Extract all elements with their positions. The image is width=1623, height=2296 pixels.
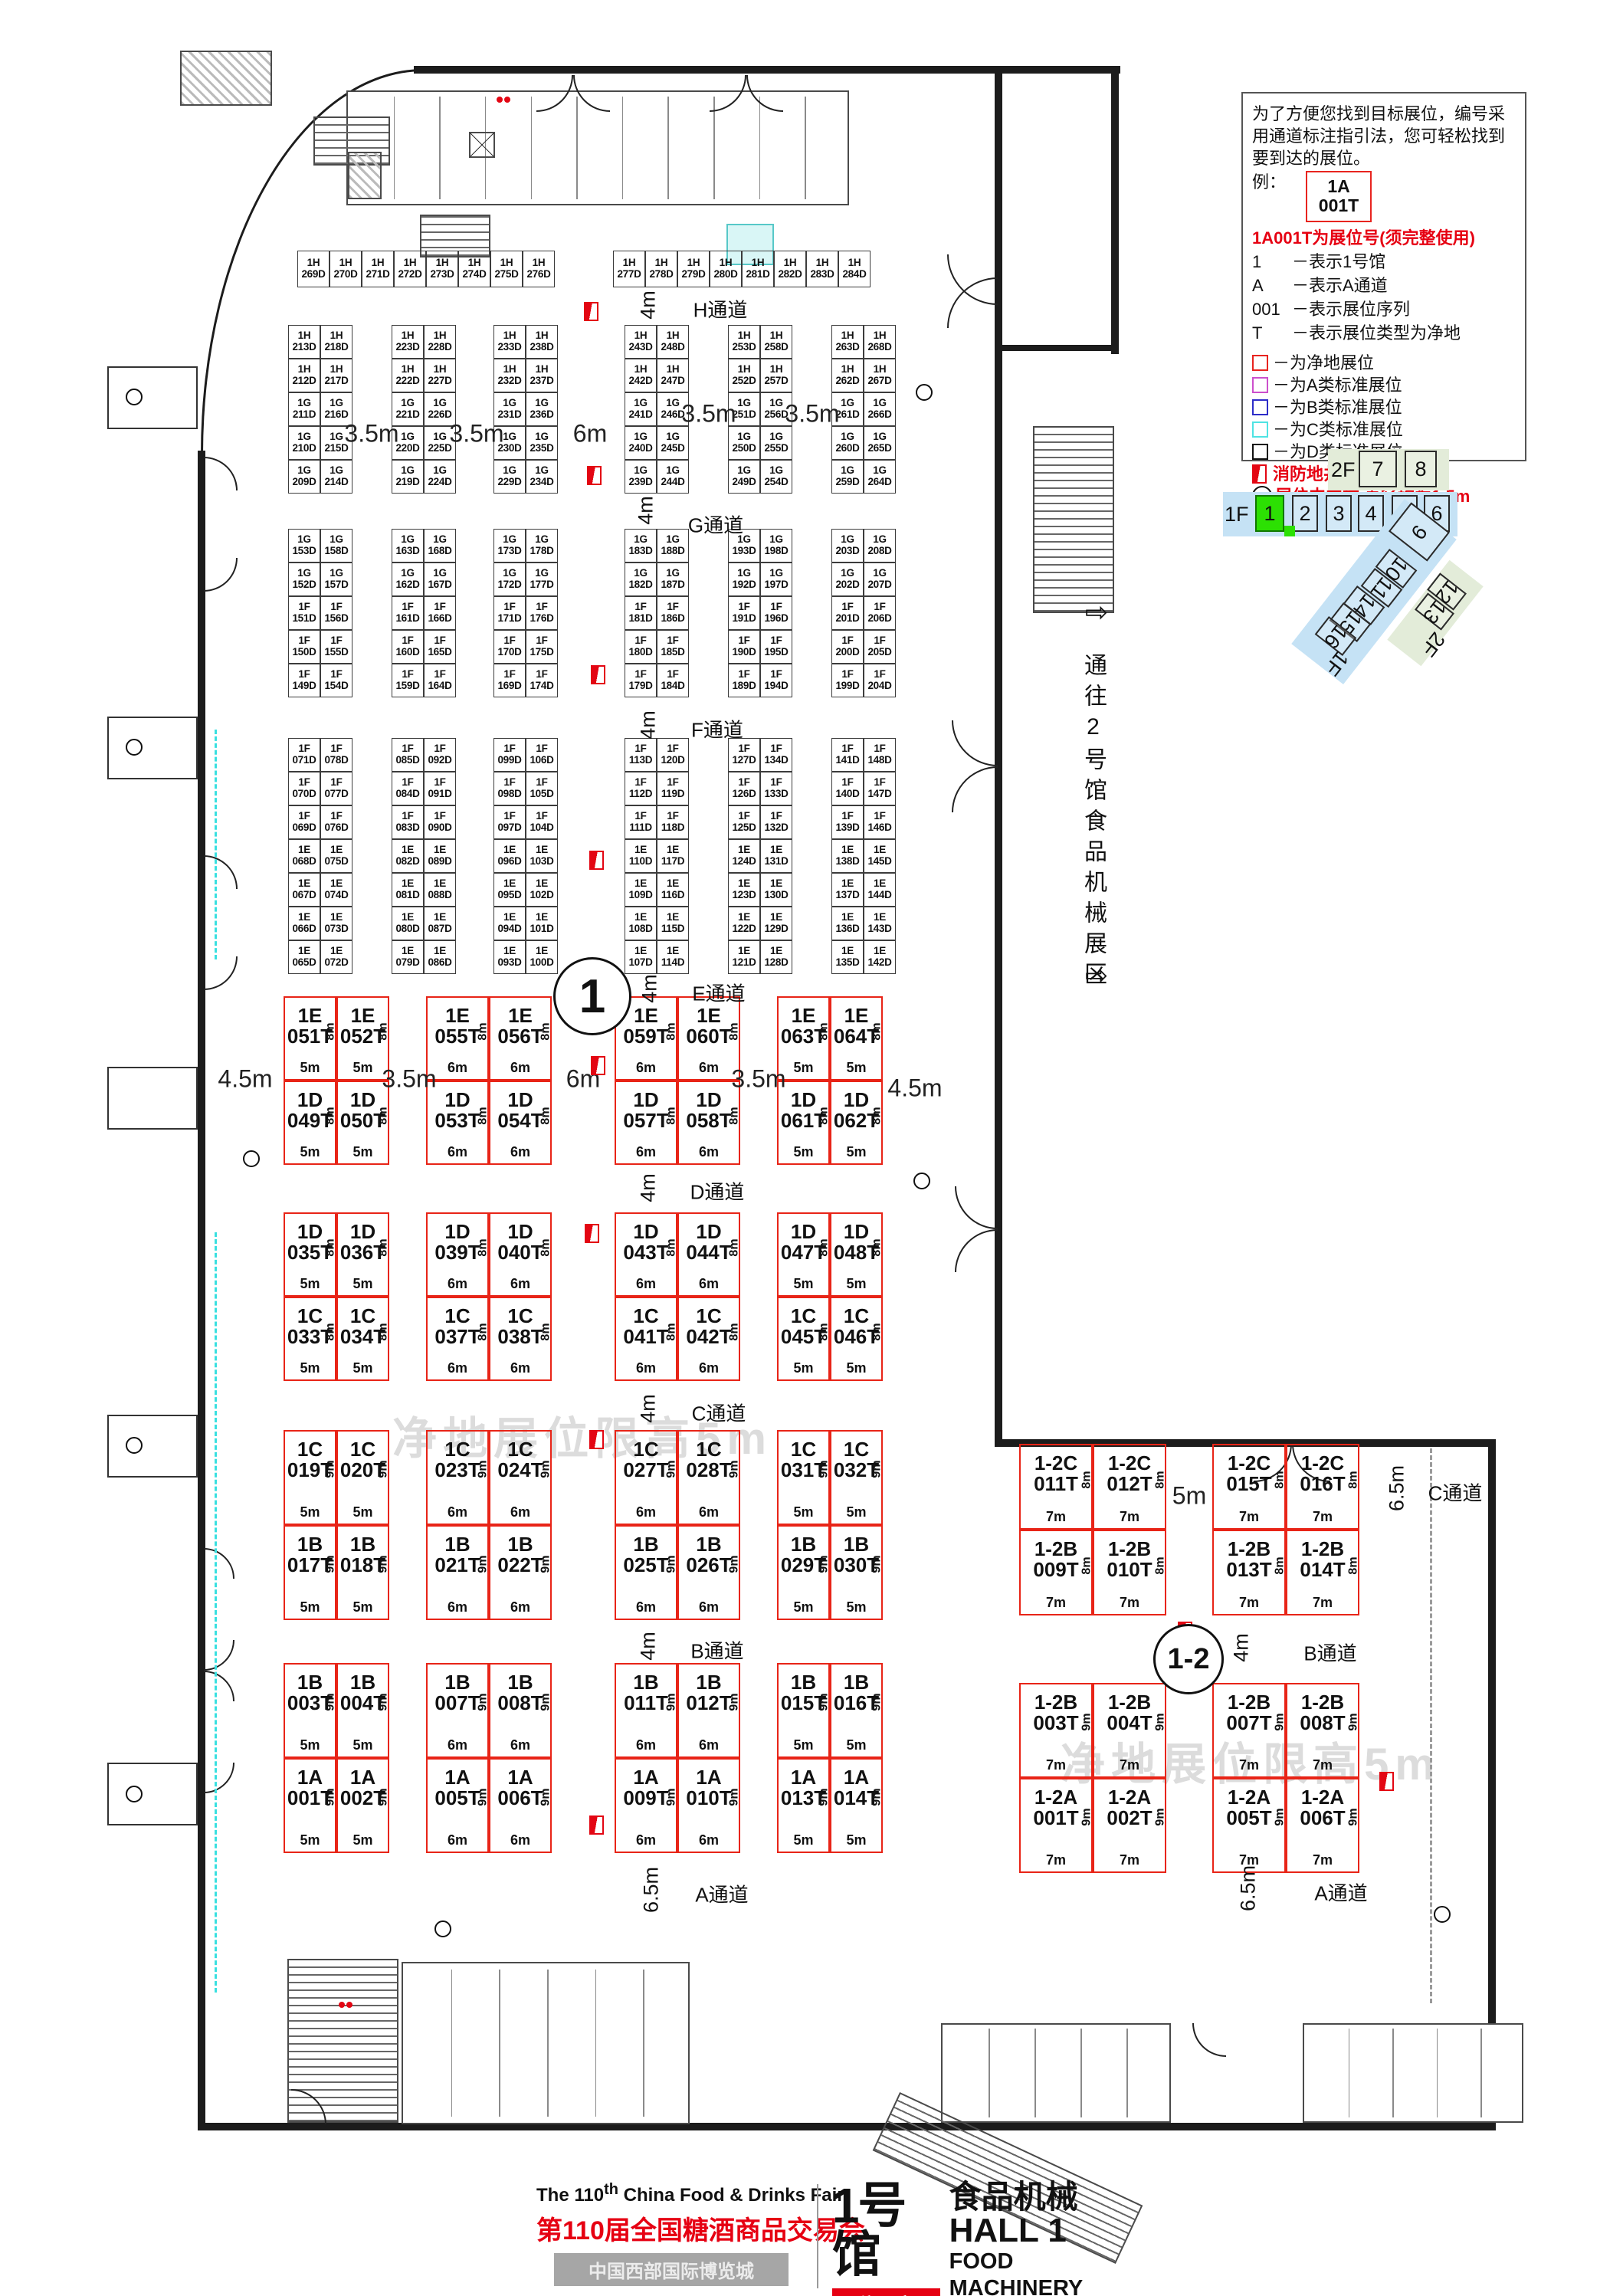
booth-1h-276d: 1H276D	[523, 251, 555, 287]
booth-width-label: 5m	[285, 1276, 335, 1292]
booth-1f-099d: 1F099D	[493, 738, 526, 772]
booth-1h-232d: 1H232D	[493, 359, 526, 392]
room-divider	[499, 1970, 500, 2116]
aisle-width-label: 3.5m	[731, 1065, 785, 1094]
booth-width-label: 7m	[1287, 1595, 1358, 1611]
booth-1g-244d: 1G244D	[657, 460, 689, 494]
booth-width-label: 5m	[831, 1360, 881, 1376]
booth-1g-259d: 1G259D	[831, 460, 864, 494]
booth-1h-269d: 1H269D	[297, 251, 330, 287]
booth-width-label: 5m	[285, 1060, 335, 1076]
booth-width-label: 5m	[831, 1737, 881, 1753]
booth-width-label: 6m	[490, 1276, 550, 1292]
booth-width-label: 5m	[779, 1360, 828, 1376]
booth-width-label: 6m	[616, 1276, 676, 1292]
booth-1h-281d: 1H281D	[742, 251, 774, 287]
booth-1f-091d: 1F091D	[424, 772, 456, 805]
booth-1e-094d: 1E094D	[493, 907, 526, 940]
wall-segment	[198, 2123, 1496, 2130]
aisle-dim-label: 4m	[637, 1394, 661, 1423]
column-pillar	[913, 1173, 930, 1189]
booth-1e-109d: 1E109D	[625, 873, 657, 907]
booth-1f-111d: 1F111D	[625, 805, 657, 839]
booth-depth-label: 9m	[376, 1460, 390, 1478]
booth-depth-label: 8m	[1346, 1471, 1360, 1488]
room-divider	[622, 97, 624, 199]
legend-example-booth: 1A 001T	[1306, 171, 1372, 222]
booth-1f-170d: 1F170D	[493, 630, 526, 664]
booth-depth-label: 8m	[817, 1323, 831, 1340]
booth-width-label: 5m	[285, 1504, 335, 1520]
aisle-width-label: 4.5m	[218, 1065, 272, 1094]
aisle-width-label: 3.5m	[681, 400, 736, 428]
booth-depth-label: 8m	[817, 1238, 831, 1256]
booth-1b-007t: 1B007T6m9m	[426, 1663, 489, 1758]
booth-1f-186d: 1F186D	[657, 596, 689, 630]
booth-1g-250d: 1G250D	[728, 426, 760, 460]
booth-1h-227d: 1H227D	[424, 359, 456, 392]
booth-width-label: 6m	[490, 1504, 550, 1520]
booth-1g-172d: 1G172D	[493, 563, 526, 596]
booth-1e-124d: 1E124D	[728, 839, 760, 873]
room-divider	[1437, 2029, 1438, 2117]
booth-depth-label: 8m	[539, 1107, 552, 1124]
room-divider	[989, 2029, 990, 2117]
booth-1b-029t: 1B029T5m9m	[777, 1525, 830, 1620]
booth-1h-271d: 1H271D	[362, 251, 394, 287]
booth-width-label: 5m	[285, 1832, 335, 1848]
facility-hatch	[348, 152, 382, 199]
booth-1h-242d: 1H242D	[625, 359, 657, 392]
booth-1e-137d: 1E137D	[831, 873, 864, 907]
booth-1h-284d: 1H284D	[838, 251, 871, 287]
booth-width-label: 5m	[338, 1737, 388, 1753]
column-pillar	[434, 1920, 451, 1937]
column-pillar	[126, 739, 143, 756]
booth-depth-label: 9m	[1080, 1808, 1093, 1825]
booth-1h-222d: 1H222D	[392, 359, 424, 392]
boundary-dashed-line	[1430, 1448, 1432, 2003]
booth-1g-157d: 1G157D	[320, 563, 352, 596]
booth-1c-042t: 1C042T6m8m	[677, 1297, 740, 1381]
booth-width-label: 6m	[428, 1060, 487, 1076]
aisle-dim-label: 6.5m	[1237, 1865, 1261, 1911]
booth-1f-071d: 1F071D	[288, 738, 320, 772]
booth-1e-143d: 1E143D	[864, 907, 896, 940]
booth-1h-278d: 1H278D	[645, 251, 677, 287]
booth-1e-116d: 1E116D	[657, 873, 689, 907]
booth-1a-005t: 1A005T6m9m	[426, 1758, 489, 1853]
booth-1-2c-011t: 1-2C011T7m8m	[1019, 1444, 1093, 1530]
booth-1f-085d: 1F085D	[392, 738, 424, 772]
booth-1h-272d: 1H272D	[394, 251, 426, 287]
booth-1h-268d: 1H268D	[864, 325, 896, 359]
fire-hydrant-icon	[587, 466, 602, 485]
booth-1f-119d: 1F119D	[657, 772, 689, 805]
minimap-floor-label: 2F	[1331, 458, 1356, 482]
booth-1g-224d: 1G224D	[424, 460, 456, 494]
booth-1f-179d: 1F179D	[625, 664, 657, 697]
booth-1e-093d: 1E093D	[493, 940, 526, 974]
booth-1-2b-004t: 1-2B004T7m9m	[1093, 1683, 1166, 1778]
booth-1f-120d: 1F120D	[657, 738, 689, 772]
aisle-dim-label: 4m	[637, 1173, 661, 1202]
fire-hydrant-icon	[585, 1224, 599, 1243]
booth-depth-label: 9m	[539, 1460, 552, 1478]
booth-1e-107d: 1E107D	[625, 940, 657, 974]
aisle-name-g: G通道	[688, 510, 743, 539]
booth-1g-208d: 1G208D	[864, 529, 896, 563]
booth-1c-023t: 1C023T6m9m	[426, 1430, 489, 1525]
booth-1f-151d: 1F151D	[288, 596, 320, 630]
booth-1h-218d: 1H218D	[320, 325, 352, 359]
booth-width-label: 5m	[285, 1737, 335, 1753]
booth-1d-040t: 1D040T6m8m	[489, 1212, 552, 1297]
booth-1f-166d: 1F166D	[424, 596, 456, 630]
booth-1g-167d: 1G167D	[424, 563, 456, 596]
booth-1f-069d: 1F069D	[288, 805, 320, 839]
booth-1e-110d: 1E110D	[625, 839, 657, 873]
booth-1e-075d: 1E075D	[320, 839, 352, 873]
booth-1g-153d: 1G153D	[288, 529, 320, 563]
booth-1g-236d: 1G236D	[526, 392, 558, 426]
booth-depth-label: 9m	[376, 1555, 390, 1573]
booth-1b-008t: 1B008T6m9m	[489, 1663, 552, 1758]
room-divider	[713, 97, 715, 199]
booth-1g-182d: 1G182D	[625, 563, 657, 596]
red-fixture-dot	[339, 2002, 345, 2008]
booth-1f-113d: 1F113D	[625, 738, 657, 772]
booth-1f-199d: 1F199D	[831, 664, 864, 697]
booth-depth-label: 9m	[817, 1693, 831, 1711]
map-tag: 展位示意图	[832, 2288, 940, 2296]
booth-1d-049t: 1D049T5m8m	[284, 1081, 336, 1165]
booth-width-label: 5m	[338, 1599, 388, 1615]
booth-1d-050t: 1D050T5m8m	[336, 1081, 389, 1165]
booth-width-label: 7m	[1021, 1509, 1091, 1525]
booth-1f-132d: 1F132D	[760, 805, 792, 839]
hall-title-en: HALL 1	[949, 2213, 1134, 2248]
booth-width-label: 6m	[616, 1360, 676, 1376]
booth-width-label: 6m	[679, 1504, 739, 1520]
booth-1e-131d: 1E131D	[760, 839, 792, 873]
legend-intro: 为了方便您找到目标展位，编号采用通道标注指引法，您可轻松找到要到达的展位。	[1252, 103, 1517, 169]
room-divider	[667, 97, 669, 199]
booth-1b-011t: 1B011T6m9m	[615, 1663, 677, 1758]
booth-1g-234d: 1G234D	[526, 460, 558, 494]
facility-pod	[107, 1067, 198, 1130]
booth-width-label: 6m	[428, 1737, 487, 1753]
booth-1e-068d: 1E068D	[288, 839, 320, 873]
booth-depth-label: 8m	[870, 1022, 884, 1040]
booth-width-label: 5m	[831, 1504, 881, 1520]
booth-1f-201d: 1F201D	[831, 596, 864, 630]
booth-width-label: 5m	[338, 1144, 388, 1160]
wall-segment	[1111, 66, 1119, 354]
booth-depth-label: 8m	[817, 1107, 831, 1124]
aisle-width-label: 4.5m	[887, 1074, 942, 1103]
booth-depth-label: 8m	[1080, 1471, 1093, 1488]
booth-width-label: 6m	[428, 1360, 487, 1376]
wall-segment	[999, 345, 1114, 351]
booth-width-label: 7m	[1021, 1852, 1091, 1868]
booth-depth-label: 8m	[1273, 1471, 1287, 1488]
booth-width-label: 6m	[616, 1144, 676, 1160]
booth-1e-122d: 1E122D	[728, 907, 760, 940]
booth-width-label: 7m	[1214, 1757, 1284, 1773]
booth-1d-062t: 1D062T5m8m	[830, 1081, 883, 1165]
booth-width-label: 7m	[1287, 1509, 1358, 1525]
booth-1g-266d: 1G266D	[864, 392, 896, 426]
booth-1c-046t: 1C046T5m8m	[830, 1297, 883, 1381]
booth-1b-003t: 1B003T5m9m	[284, 1663, 336, 1758]
booth-1f-139d: 1F139D	[831, 805, 864, 839]
booth-width-label: 6m	[679, 1599, 739, 1615]
booth-depth-label: 9m	[727, 1555, 741, 1573]
booth-1g-210d: 1G210D	[288, 426, 320, 460]
booth-1b-018t: 1B018T5m9m	[336, 1525, 389, 1620]
booth-1f-118d: 1F118D	[657, 805, 689, 839]
booth-width-label: 5m	[779, 1144, 828, 1160]
booth-1-2b-003t: 1-2B003T7m9m	[1019, 1683, 1093, 1778]
booth-width-label: 6m	[490, 1144, 550, 1160]
minimap-hall-2: 2	[1292, 495, 1318, 532]
booth-depth-label: 8m	[727, 1323, 741, 1340]
booth-1f-175d: 1F175D	[526, 630, 558, 664]
example-booth-line2: 001T	[1319, 195, 1359, 215]
booth-1f-191d: 1F191D	[728, 596, 760, 630]
booth-1g-192d: 1G192D	[728, 563, 760, 596]
booth-depth-label: 9m	[817, 1460, 831, 1478]
booth-1h-279d: 1H279D	[677, 251, 710, 287]
legend-box: 为了方便您找到目标展位，编号采用通道标注指引法，您可轻松找到要到达的展位。 例：…	[1241, 92, 1526, 461]
booth-width-label: 5m	[779, 1599, 828, 1615]
minimap-hall-7: 7	[1359, 451, 1397, 487]
booth-1e-101d: 1E101D	[526, 907, 558, 940]
column-pillar	[126, 389, 143, 405]
booth-1e-082d: 1E082D	[392, 839, 424, 873]
booth-1g-203d: 1G203D	[831, 529, 864, 563]
legend-type-row: －为净地展位	[1252, 352, 1517, 374]
booth-1d-044t: 1D044T6m8m	[677, 1212, 740, 1297]
booth-depth-label: 8m	[323, 1323, 337, 1340]
booth-1g-235d: 1G235D	[526, 426, 558, 460]
legend-key-line: 001－表示展位序列	[1252, 298, 1517, 320]
booth-1c-020t: 1C020T5m9m	[336, 1430, 389, 1525]
room-divider	[805, 97, 806, 199]
booth-width-label: 5m	[779, 1737, 828, 1753]
booth-depth-label: 8m	[870, 1107, 884, 1124]
booth-1g-240d: 1G240D	[625, 426, 657, 460]
booth-1c-032t: 1C032T5m9m	[830, 1430, 883, 1525]
fair-title-en: The 110th China Food & Drinks Fair	[536, 2181, 806, 2206]
booth-1e-130d: 1E130D	[760, 873, 792, 907]
booth-1-2c-015t: 1-2C015T7m8m	[1212, 1444, 1286, 1530]
booth-1f-176d: 1F176D	[526, 596, 558, 630]
legend-keys: 1－表示1号馆A－表示A通道001－表示展位序列T－表示展位类型为净地	[1252, 251, 1517, 344]
facility-rooms	[941, 2023, 1171, 2123]
booth-1-2b-008t: 1-2B008T7m9m	[1286, 1683, 1359, 1778]
booth-1-2a-002t: 1-2A002T7m9m	[1093, 1778, 1166, 1873]
booth-1a-010t: 1A010T6m9m	[677, 1758, 740, 1853]
booth-width-label: 5m	[779, 1832, 828, 1848]
booth-width-label: 6m	[428, 1832, 487, 1848]
category-en: FOOD MACHINERY	[949, 2248, 1134, 2296]
booth-1e-138d: 1E138D	[831, 839, 864, 873]
booth-1c-037t: 1C037T6m8m	[426, 1297, 489, 1381]
booth-depth-label: 9m	[870, 1555, 884, 1573]
booth-1-2a-001t: 1-2A001T7m9m	[1019, 1778, 1093, 1873]
booth-width-label: 6m	[679, 1737, 739, 1753]
booth-width-label: 7m	[1094, 1509, 1165, 1525]
booth-depth-label: 9m	[476, 1788, 490, 1806]
red-fixture-dot	[504, 97, 510, 103]
aisle-name-b: B通道	[690, 1636, 743, 1665]
booth-width-label: 5m	[338, 1360, 388, 1376]
legend-type-row: －为B类标准展位	[1252, 396, 1517, 418]
minimap-hall-4: 4	[1358, 495, 1384, 532]
booth-1f-149d: 1F149D	[288, 664, 320, 697]
booth-1e-103d: 1E103D	[526, 839, 558, 873]
aisle-width-label: 3.5m	[449, 420, 503, 448]
booth-width-label: 6m	[679, 1360, 739, 1376]
fair-title-sup: th	[604, 2181, 618, 2198]
booth-1c-034t: 1C034T5m8m	[336, 1297, 389, 1381]
booth-1c-041t: 1C041T6m8m	[615, 1297, 677, 1381]
booth-1h-243d: 1H243D	[625, 325, 657, 359]
booth-depth-label: 8m	[376, 1238, 390, 1256]
booth-1-2b-009t: 1-2B009T7m8m	[1019, 1530, 1093, 1615]
booth-1e-065d: 1E065D	[288, 940, 320, 974]
aisle-width-label: 3.5m	[344, 420, 398, 448]
booth-1h-262d: 1H262D	[831, 359, 864, 392]
booth-depth-label: 8m	[539, 1022, 552, 1040]
booth-1f-155d: 1F155D	[320, 630, 352, 664]
aisle-dim-label: 6.5m	[1385, 1465, 1409, 1511]
booth-width-label: 6m	[679, 1060, 739, 1076]
booth-1h-258d: 1H258D	[760, 325, 792, 359]
booth-1e-100d: 1E100D	[526, 940, 558, 974]
booth-1a-006t: 1A006T6m9m	[489, 1758, 552, 1853]
booth-1f-200d: 1F200D	[831, 630, 864, 664]
facility-pod	[107, 717, 198, 779]
booth-depth-label: 9m	[664, 1555, 678, 1573]
booth-width-label: 5m	[338, 1276, 388, 1292]
booth-depth-label: 8m	[376, 1022, 390, 1040]
booth-1f-195d: 1F195D	[760, 630, 792, 664]
booth-1f-146d: 1F146D	[864, 805, 896, 839]
floor-plan-page: 净地展位限高5m净地展位限高5m1H269D1H270D1H271D1H272D…	[0, 0, 1623, 2296]
facility-hstripe	[1033, 426, 1114, 613]
booth-1f-077d: 1F077D	[320, 772, 352, 805]
booth-depth-label: 8m	[476, 1323, 490, 1340]
aisle-width-label: 3.5m	[382, 1065, 436, 1094]
column-pillar	[1434, 1906, 1451, 1923]
booth-depth-label: 8m	[1273, 1556, 1287, 1574]
booth-width-label: 6m	[490, 1599, 550, 1615]
booth-1-2b-014t: 1-2B014T7m8m	[1286, 1530, 1359, 1615]
booth-1f-098d: 1F098D	[493, 772, 526, 805]
booth-depth-label: 8m	[1080, 1556, 1093, 1574]
booth-1f-161d: 1F161D	[392, 596, 424, 630]
fair-titles: The 110th China Food & Drinks Fair 第110届…	[536, 2181, 806, 2288]
booth-depth-label: 9m	[1080, 1713, 1093, 1730]
booth-depth-label: 9m	[870, 1693, 884, 1711]
room-divider	[1349, 2029, 1350, 2117]
booth-width-label: 6m	[679, 1144, 739, 1160]
booth-1e-089d: 1E089D	[424, 839, 456, 873]
legend-type-row: －为C类标准展位	[1252, 418, 1517, 441]
corridor-text: 通往2号馆食品机械展区	[1076, 653, 1111, 992]
booth-1f-090d: 1F090D	[424, 805, 456, 839]
booth-1g-245d: 1G245D	[657, 426, 689, 460]
booth-1h-248d: 1H248D	[657, 325, 689, 359]
booth-1e-074d: 1E074D	[320, 873, 352, 907]
aisle-name-c: C通道	[1428, 1478, 1483, 1507]
booth-depth-label: 8m	[727, 1022, 741, 1040]
booth-1f-194d: 1F194D	[760, 664, 792, 697]
booth-1g-168d: 1G168D	[424, 529, 456, 563]
booth-1g-219d: 1G219D	[392, 460, 424, 494]
booth-1e-073d: 1E073D	[320, 907, 352, 940]
booth-depth-label: 9m	[1273, 1713, 1287, 1730]
booth-1f-076d: 1F076D	[320, 805, 352, 839]
booth-1g-229d: 1G229D	[493, 460, 526, 494]
booth-1f-174d: 1F174D	[526, 664, 558, 697]
room-divider	[531, 97, 533, 199]
booth-depth-label: 9m	[664, 1788, 678, 1806]
minimap-hall-8: 8	[1405, 451, 1437, 487]
booth-1e-064t: 1E064T5m8m	[830, 996, 883, 1081]
legend-type-row: －为A类标准展位	[1252, 374, 1517, 396]
booth-width-label: 5m	[779, 1276, 828, 1292]
room-divider	[576, 97, 578, 199]
booth-1f-196d: 1F196D	[760, 596, 792, 630]
booth-1d-057t: 1D057T6m8m	[615, 1081, 677, 1165]
venue-name: 中国西部国际博览城	[554, 2253, 789, 2286]
booth-width-label: 7m	[1094, 1852, 1165, 1868]
booth-depth-label: 8m	[323, 1107, 337, 1124]
booth-1f-169d: 1F169D	[493, 664, 526, 697]
booth-1h-275d: 1H275D	[490, 251, 523, 287]
fire-hydrant-icon	[591, 665, 605, 684]
booth-1b-030t: 1B030T5m9m	[830, 1525, 883, 1620]
fire-hydrant-icon	[1379, 1772, 1394, 1791]
booth-1a-014t: 1A014T5m9m	[830, 1758, 883, 1853]
booth-depth-label: 9m	[539, 1693, 552, 1711]
booth-1e-115d: 1E115D	[657, 907, 689, 940]
booth-width-label: 5m	[831, 1599, 881, 1615]
booth-1g-241d: 1G241D	[625, 392, 657, 426]
booth-1f-148d: 1F148D	[864, 738, 896, 772]
booth-width-label: 5m	[831, 1144, 881, 1160]
booth-1g-207d: 1G207D	[864, 563, 896, 596]
booth-width-label: 6m	[490, 1360, 550, 1376]
red-fixture-dot	[346, 2002, 352, 2008]
booth-depth-label: 8m	[727, 1107, 741, 1124]
booth-width-label: 6m	[490, 1832, 550, 1848]
booth-1e-056t: 1E056T6m8m	[489, 996, 552, 1081]
booth-1b-017t: 1B017T5m9m	[284, 1525, 336, 1620]
booth-1e-096d: 1E096D	[493, 839, 526, 873]
booth-1g-178d: 1G178D	[526, 529, 558, 563]
booth-depth-label: 9m	[664, 1460, 678, 1478]
booth-1e-128d: 1E128D	[760, 940, 792, 974]
booth-1h-228d: 1H228D	[424, 325, 456, 359]
booth-depth-label: 9m	[476, 1555, 490, 1573]
booth-width-label: 6m	[616, 1737, 676, 1753]
fire-hydrant-icon	[589, 1815, 604, 1835]
